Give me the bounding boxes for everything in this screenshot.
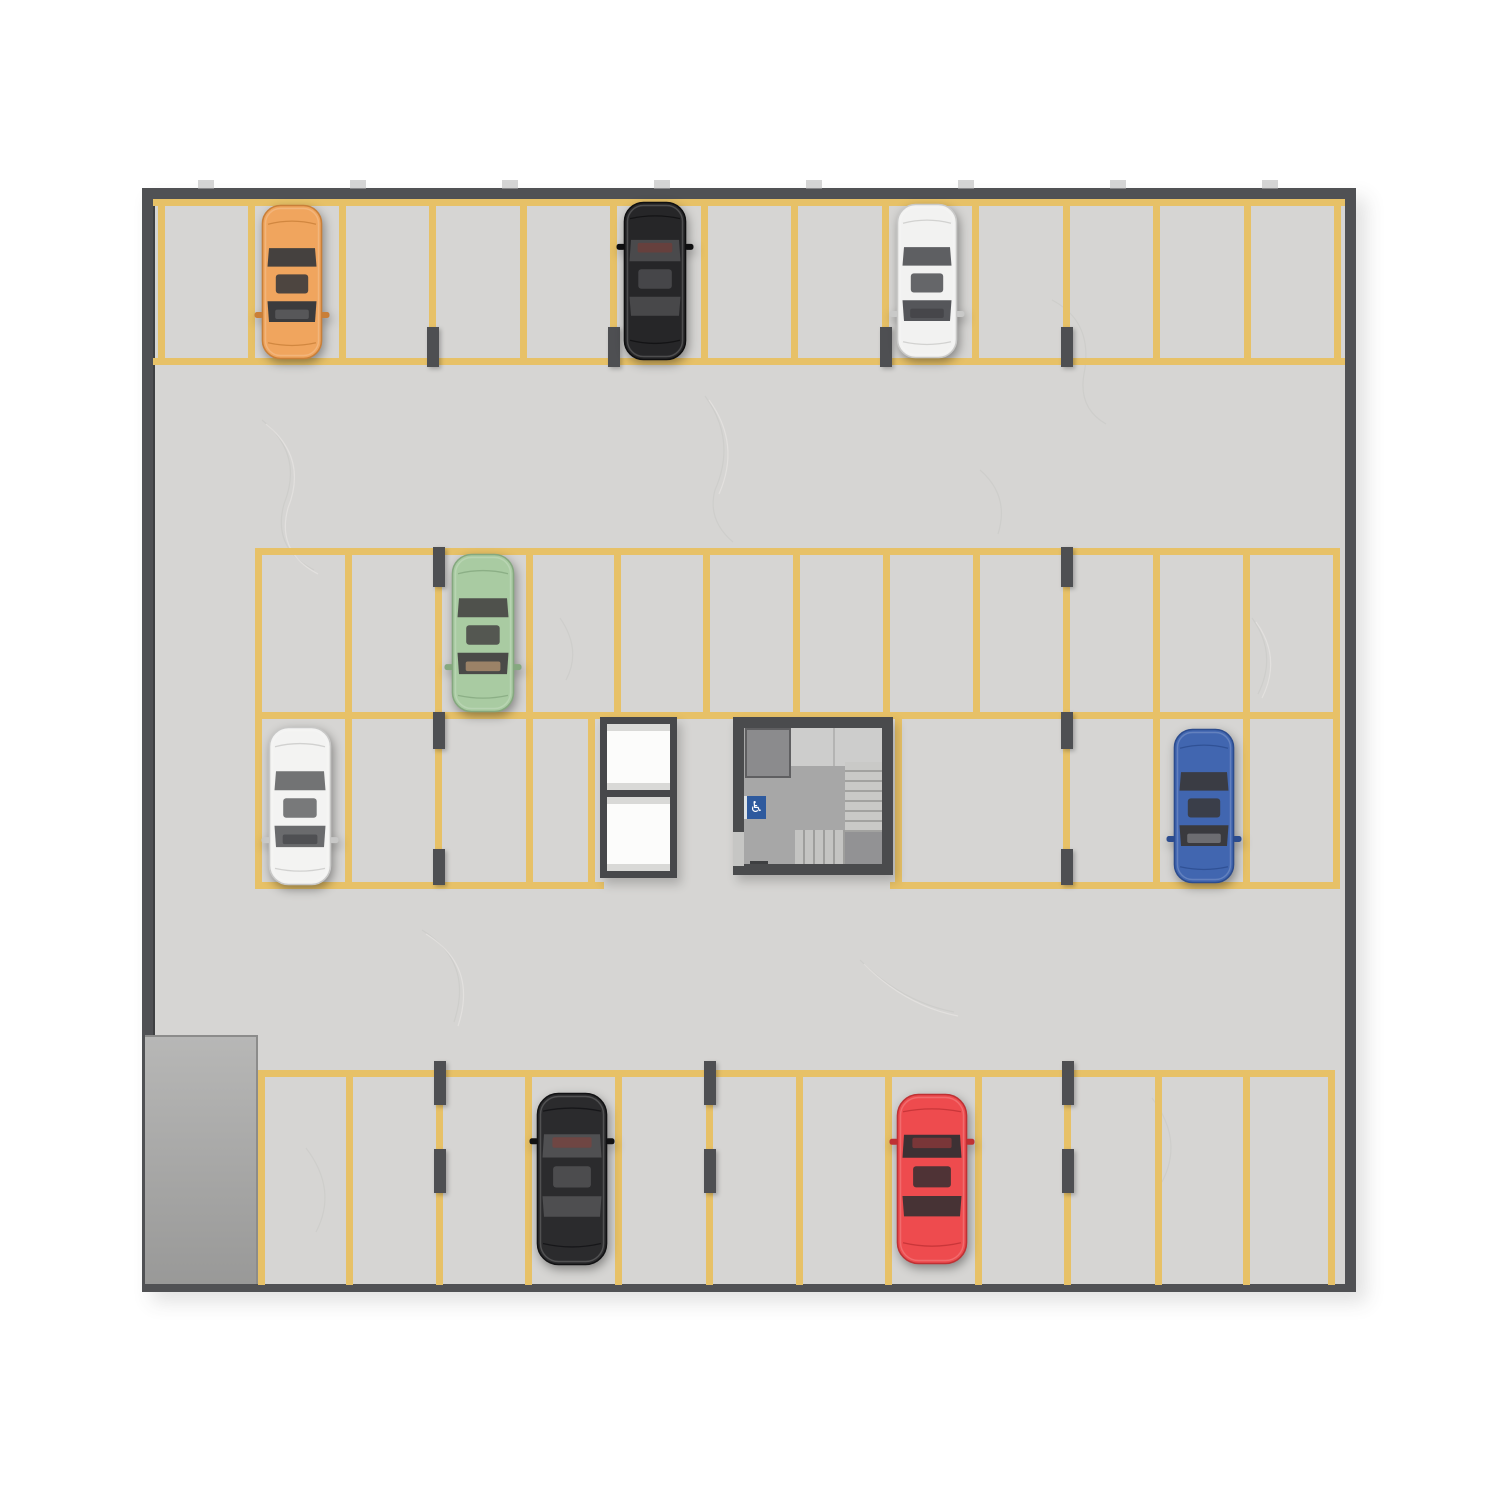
stall-line-vertical	[258, 1070, 265, 1285]
stall-line-horizontal	[153, 199, 1345, 206]
wall-joint-tick	[806, 180, 822, 189]
support-pillar	[1061, 327, 1073, 367]
wall-joint-tick	[1262, 180, 1278, 189]
car-blue	[1166, 724, 1242, 888]
wheelchair-icon: ♿	[750, 800, 763, 815]
wall-joint-tick	[350, 180, 366, 189]
support-pillar	[434, 1061, 446, 1105]
stall-line-vertical	[346, 1070, 353, 1285]
stall-line-vertical	[793, 548, 800, 719]
support-pillar	[1062, 1061, 1074, 1105]
stall-line-vertical	[345, 712, 352, 889]
stall-line-vertical	[1243, 712, 1250, 889]
car-black-bottom	[529, 1088, 615, 1270]
stall-line-vertical	[1153, 199, 1160, 365]
stall-line-vertical	[1155, 1070, 1162, 1285]
stall-line-horizontal	[153, 358, 1345, 365]
stall-line-vertical	[703, 548, 710, 719]
support-pillar	[1062, 1149, 1074, 1193]
stall-line-vertical	[1333, 548, 1340, 719]
stair-corner-landing	[845, 832, 882, 864]
stall-line-vertical	[1243, 1070, 1250, 1285]
stall-line-vertical	[895, 712, 902, 889]
stall-line-vertical	[520, 199, 527, 365]
wall-joint-tick	[1110, 180, 1126, 189]
stall-line-vertical	[345, 548, 352, 719]
stair-landing	[791, 728, 882, 766]
stall-line-vertical	[796, 1070, 803, 1285]
stall-line-vertical	[972, 199, 979, 365]
stall-line-vertical	[615, 1070, 622, 1285]
car-green	[444, 549, 522, 717]
car-red	[889, 1089, 975, 1269]
stair-landing-seam	[833, 728, 835, 766]
stall-line-vertical	[526, 548, 533, 719]
stall-line-vertical	[1334, 199, 1341, 365]
wall-joint-tick	[502, 180, 518, 189]
stall-line-vertical	[1333, 712, 1340, 889]
support-pillar	[1061, 849, 1073, 885]
stall-line-vertical	[1243, 548, 1250, 719]
stall-line-vertical	[339, 199, 346, 365]
support-pillar	[704, 1061, 716, 1105]
wall-joint-tick	[958, 180, 974, 189]
stall-line-vertical	[1153, 712, 1160, 889]
stall-line-vertical	[158, 199, 165, 365]
stall-line-vertical	[588, 712, 595, 889]
parking-garage-floor-plan: ♿	[0, 0, 1500, 1500]
support-pillar	[433, 849, 445, 885]
stair-flight-right	[845, 762, 882, 832]
stall-line-vertical	[701, 199, 708, 365]
stairwell-door-line	[750, 861, 768, 864]
accessibility-sign: ♿	[744, 796, 766, 819]
elevator-block	[600, 717, 677, 878]
stall-line-vertical	[255, 548, 262, 719]
stall-line-vertical	[614, 548, 621, 719]
stall-line-vertical	[1244, 199, 1251, 365]
car-black-top	[616, 197, 694, 365]
support-pillar	[433, 547, 445, 587]
stall-line-vertical	[1153, 548, 1160, 719]
car-white-middle	[261, 722, 339, 890]
elevator-cabin-2	[607, 797, 670, 871]
support-pillar	[433, 712, 445, 749]
stall-line-vertical	[791, 199, 798, 365]
stall-line-vertical	[1328, 1070, 1335, 1285]
car-orange-top	[254, 200, 330, 364]
support-pillar	[1061, 712, 1073, 749]
stair-flight-bottom	[795, 830, 845, 864]
wall-joint-tick	[654, 180, 670, 189]
car-white-top	[889, 199, 965, 363]
stall-line-vertical	[973, 548, 980, 719]
stall-line-horizontal	[890, 882, 1340, 889]
machine-room	[745, 728, 791, 778]
stall-line-vertical	[526, 712, 533, 889]
stall-line-vertical	[883, 548, 890, 719]
stall-line-vertical	[975, 1070, 982, 1285]
stairwell-door-gap	[733, 832, 744, 866]
wall-joint-tick	[198, 180, 214, 189]
entry-ramp	[145, 1035, 258, 1284]
elevator-cabin-1	[607, 724, 670, 790]
support-pillar	[427, 327, 439, 367]
support-pillar	[434, 1149, 446, 1193]
support-pillar	[704, 1149, 716, 1193]
support-pillar	[1061, 547, 1073, 587]
